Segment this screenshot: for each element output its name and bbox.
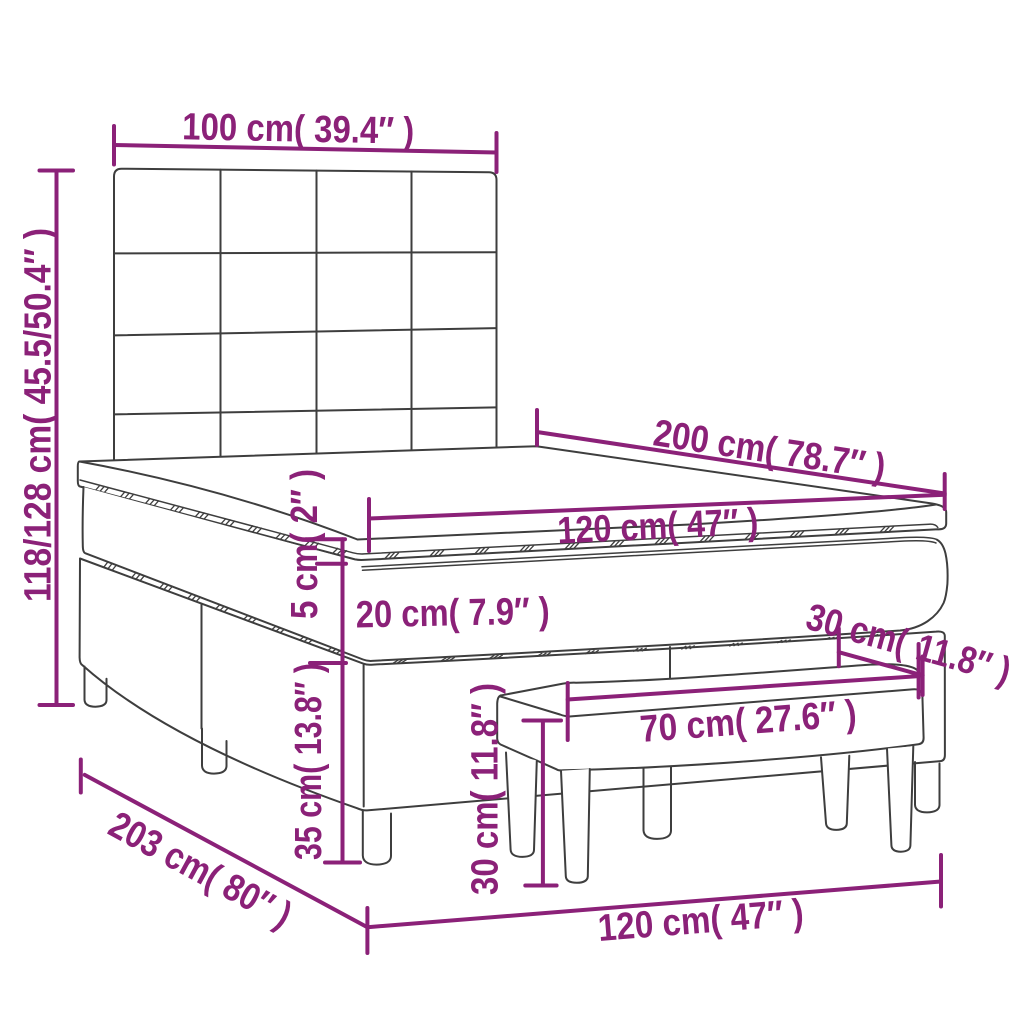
svg-text:20 cm( 7.9″ ): 20 cm( 7.9″ ) [355,590,550,636]
svg-text:30 cm( 11.8″ ): 30 cm( 11.8″ ) [465,683,507,895]
svg-text:118/128 cm( 45.5/50.4″ ): 118/128 cm( 45.5/50.4″ ) [18,228,60,602]
svg-text:100 cm( 39.4″ ): 100 cm( 39.4″ ) [182,106,415,152]
svg-text:5 cm( 2″ ): 5 cm( 2″ ) [284,469,326,619]
svg-text:35 cm( 13.8″ ): 35 cm( 13.8″ ) [288,663,330,860]
